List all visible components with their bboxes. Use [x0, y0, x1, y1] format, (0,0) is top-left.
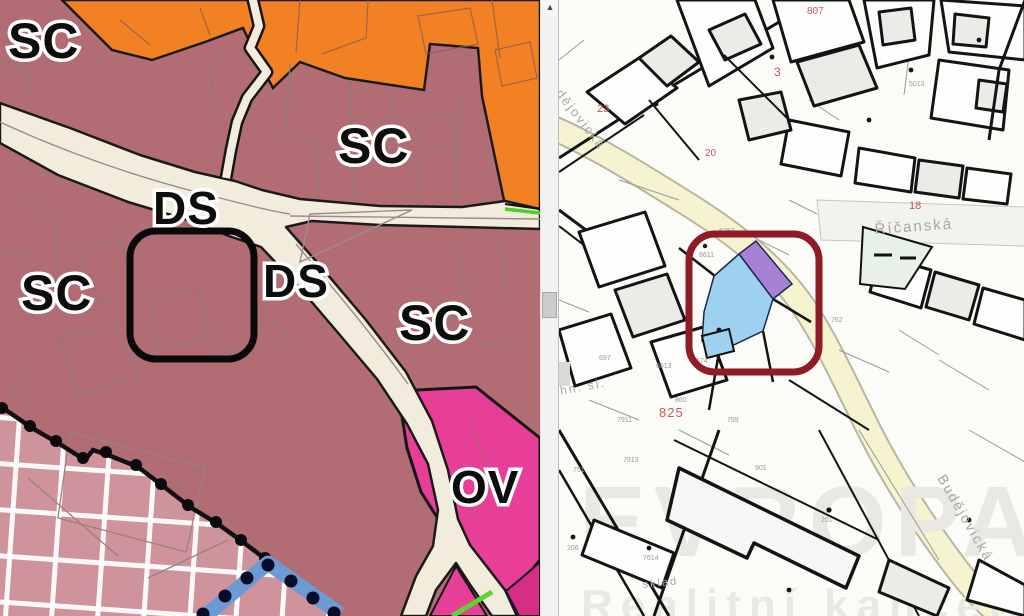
parcel-number: 759 [727, 417, 739, 424]
parcel-number-red: 18 [909, 200, 921, 212]
listing-map-comparison: SC SC DS DS SC SC OV ▲ EVROPA Realitní k… [0, 0, 1024, 616]
parcel-number: 201 [821, 517, 833, 524]
parcel-number-red: 807 [807, 6, 824, 17]
vertical-scrollbar[interactable]: ▲ [540, 0, 558, 616]
zone-label-ds-2: DS [263, 255, 329, 307]
parcel-number: 6513 [656, 363, 672, 370]
zoning-plan-map: SC SC DS DS SC SC OV [0, 0, 540, 616]
parcel-number: 860 [675, 397, 687, 404]
zone-label-sc-1: SC [8, 13, 79, 69]
zone-label-ds-1: DS [153, 182, 219, 234]
parcel-number: 901 [755, 465, 767, 472]
scroll-up-icon: ▲ [546, 2, 555, 12]
zone-label-ov: OV [451, 461, 519, 513]
parcel-number-red: 20 [705, 148, 717, 159]
scrollbar-thumb[interactable] [542, 292, 557, 318]
parcel-number: 7913 [623, 457, 639, 464]
parcel-number: 8611 [699, 252, 714, 259]
parcel-number: 751 [573, 467, 585, 474]
cadastral-map: EVROPA Realitní kancelář [558, 0, 1024, 616]
parcel-number: 697 [599, 355, 611, 362]
zone-label-sc-2: SC [338, 118, 409, 174]
zone-label-sc-4: SC [399, 295, 470, 351]
parcel-number: 7614 [643, 555, 659, 562]
zoning-plan-canvas: SC SC DS DS SC SC OV [0, 0, 540, 616]
zone-label-sc-3: SC [21, 265, 92, 321]
cadastral-canvas: EVROPA Realitní kancelář [559, 0, 1024, 616]
parcel-number-red: 23 [597, 103, 609, 115]
parcel-number: 5013 [909, 81, 925, 88]
scrollbar-up-button[interactable]: ▲ [541, 0, 559, 17]
parcel-number-red: 825 [659, 405, 684, 420]
parcel-number: 762 [831, 317, 843, 324]
parcel-number: 7911 [617, 417, 632, 424]
parcel-number-red: 3 [774, 65, 781, 79]
parcel-number: 206 [567, 545, 579, 552]
